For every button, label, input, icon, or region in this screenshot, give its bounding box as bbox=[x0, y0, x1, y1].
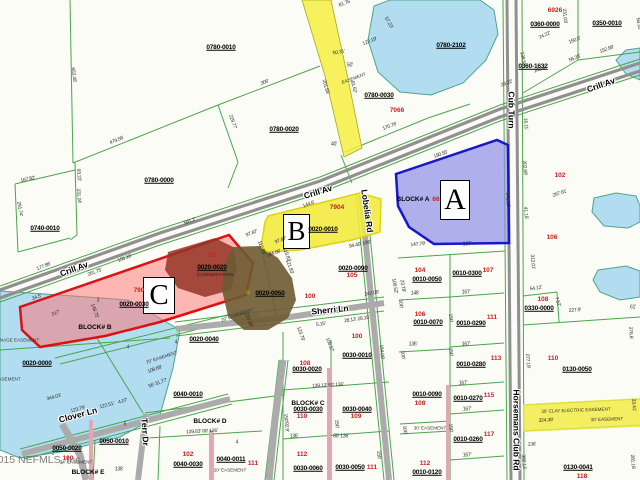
parcel-label: 0020-0000 bbox=[22, 361, 51, 368]
dimension-label: 154.09' bbox=[378, 344, 384, 359]
easement-label: 20' EASEMENT bbox=[214, 469, 247, 474]
dimension-label: 202.69' bbox=[521, 160, 527, 175]
dimension-label: 40' bbox=[331, 143, 337, 148]
dimension-label: 382.12' bbox=[520, 454, 526, 469]
dimension-label: 61' bbox=[630, 306, 636, 311]
dimension-label: 150' bbox=[375, 451, 381, 460]
dimension-label: 281.16' bbox=[629, 454, 635, 469]
number-label: 4 bbox=[236, 441, 239, 446]
parcel-label: 0010-0070 bbox=[413, 320, 442, 327]
lot_number-label: 66 bbox=[432, 197, 439, 204]
lot_number-label: 100 bbox=[305, 294, 316, 301]
parcel-label: 0780-0010 bbox=[206, 45, 235, 52]
parcel-label: 0030-0010 bbox=[342, 353, 371, 360]
parcel-label: 0020-0020 bbox=[197, 265, 226, 272]
block-label: BLOCK# A bbox=[397, 197, 430, 204]
dimension-label: 312.01' bbox=[529, 254, 535, 269]
lot_number-label: 106 bbox=[547, 235, 558, 242]
parcel-label: 0010-0290 bbox=[456, 321, 485, 328]
region-c-letter-box: C bbox=[143, 277, 175, 314]
lot_number-label: 102 bbox=[183, 452, 194, 459]
lot_number-label: 111 bbox=[248, 461, 258, 468]
parcel-label: 0010-0260 bbox=[453, 437, 482, 444]
dimension-label: 150' bbox=[447, 348, 453, 357]
dimension-label: 167' bbox=[463, 454, 472, 459]
lot_number-label: 117 bbox=[484, 432, 495, 439]
dimension-label: 167' bbox=[462, 343, 471, 348]
parcel-label: 0740-0010 bbox=[30, 226, 59, 233]
region-c-letter: C bbox=[149, 279, 168, 312]
parcel-label: 0010-0120 bbox=[412, 470, 441, 477]
dimension-label: 58.35' bbox=[634, 18, 640, 31]
region-a-letter: A bbox=[444, 183, 466, 217]
dimension-label: 100' bbox=[397, 300, 403, 309]
number-label: 3 bbox=[97, 299, 100, 304]
block-label: BLOCK# C bbox=[291, 401, 324, 408]
lot_number-label: 108 bbox=[538, 297, 549, 304]
dimension-label: 276.6' bbox=[627, 327, 633, 340]
region-a-letter-box: A bbox=[440, 180, 470, 220]
dimension-label: 16.11' bbox=[522, 118, 528, 130]
lot_number-label: 105 bbox=[347, 273, 358, 280]
parcel-label: 0780-2102 bbox=[436, 43, 465, 50]
lot_number-label: 110 bbox=[548, 356, 559, 363]
parcel-label: 0020-0040 bbox=[189, 337, 218, 344]
lot_number-label: 7066 bbox=[390, 108, 404, 115]
lot_number-label: 110 bbox=[297, 414, 308, 421]
dimension-label: 167' bbox=[459, 382, 468, 387]
lot_number-label: 112 bbox=[420, 461, 431, 468]
dimension-label: 231.24' bbox=[75, 188, 81, 203]
parcel-label: 0360-0000 bbox=[530, 22, 559, 29]
parcel-label: 0030-0020 bbox=[292, 367, 321, 374]
number-label: 5 bbox=[124, 423, 127, 428]
lot_number-label: 115 bbox=[484, 393, 495, 400]
dimension-label: 136' bbox=[290, 435, 299, 440]
lot_number-label: 112 bbox=[297, 452, 308, 459]
lot_number-label: 107 bbox=[483, 268, 494, 275]
lot_number-label: 50 bbox=[208, 253, 215, 260]
lot_number-label: 102 bbox=[555, 173, 566, 180]
dimension-label: 241.18' bbox=[504, 192, 510, 207]
parcel-label: 0040-0011 bbox=[217, 457, 246, 464]
mls-watermark: ©2015 NEFMLS, Inc bbox=[0, 454, 80, 466]
dimension-label: 93.22' bbox=[75, 169, 81, 182]
dimension-label: 231.03' bbox=[561, 8, 567, 23]
dimension-label: 138.5' bbox=[518, 52, 525, 65]
lot_number-label: 100 bbox=[352, 334, 363, 341]
dimension-label: 41.15' bbox=[522, 207, 528, 220]
parcel-label: 0010-0050 bbox=[412, 277, 441, 284]
dimension-label: 33.41' bbox=[630, 399, 636, 412]
easement-label: 30' EASEMENT bbox=[414, 427, 447, 432]
dimension-label: 100' bbox=[401, 426, 407, 435]
parcel-label: 0330-0000 bbox=[524, 306, 553, 313]
dimension-label: 136' bbox=[409, 343, 418, 348]
dimension-label: 167' bbox=[463, 408, 472, 413]
parcel-label: 0040-0010 bbox=[173, 392, 202, 399]
region-b-letter: B bbox=[287, 216, 305, 247]
region-b-letter-box: B bbox=[283, 214, 310, 249]
parcel-label: 0020-0010 bbox=[308, 227, 337, 234]
parcel-label: 0010-0280 bbox=[456, 362, 485, 369]
dimension-label: 150' bbox=[333, 420, 339, 429]
dimension-label: 167' bbox=[462, 291, 471, 296]
parcel-label: 0040-0030 bbox=[173, 462, 202, 469]
lot_number-label: 118 bbox=[577, 474, 588, 480]
dimension-label: 23.78' bbox=[398, 280, 405, 293]
lot_number-label: 111 bbox=[367, 465, 377, 472]
lot_number-label: 108 bbox=[415, 401, 426, 408]
dimension-label: 277.19' bbox=[524, 353, 530, 368]
lot_number-label: 113 bbox=[491, 356, 502, 363]
dimension-label: 80' 136' bbox=[333, 435, 349, 440]
dimension-label: 146' bbox=[411, 292, 420, 297]
note-label: (CONSERVATION bbox=[197, 273, 234, 278]
dimension-label: 92.9' bbox=[283, 422, 289, 432]
lot_number-label: 108 bbox=[300, 361, 311, 368]
parcel-label: 0130-0041 bbox=[563, 465, 592, 472]
parcel-label: 0780-0000 bbox=[144, 178, 173, 185]
dimension-label: 136' bbox=[115, 468, 124, 473]
parcel-label: 0780-0030 bbox=[364, 93, 393, 100]
lot_number-label: 7904 bbox=[330, 205, 344, 212]
road-label: Horsemans Club Rd bbox=[512, 389, 521, 470]
dimension-label: 227.9' bbox=[569, 308, 582, 314]
plat-map[interactable]: A B C 0780-00100780-00200780-00000740-00… bbox=[0, 0, 640, 480]
lot_number-label: 111 bbox=[487, 315, 497, 322]
parcel-label: 0020-0050 bbox=[255, 291, 284, 298]
easement-label: DRAINAGE EASEMENT bbox=[0, 339, 39, 344]
parcel-label: 0780-0020 bbox=[269, 127, 298, 134]
number-label: 4 bbox=[127, 346, 130, 351]
road-label: Cub Turn bbox=[507, 91, 516, 128]
parcel-label: 0010-0300 bbox=[452, 271, 481, 278]
lot_number-label: 109 bbox=[351, 414, 362, 421]
lot_number-label: 106 bbox=[415, 312, 426, 319]
parcel-label: 0030-0060 bbox=[293, 466, 322, 473]
block-label: BLOCK# B bbox=[78, 325, 111, 332]
parcel-label: 0130-0050 bbox=[562, 367, 591, 374]
parcel-label: 0010-0270 bbox=[453, 396, 482, 403]
parcel-label: 0020-0030 bbox=[119, 302, 148, 309]
easement-label: EASEMENT bbox=[0, 378, 21, 383]
parcel-label: 0050-0010 bbox=[99, 439, 128, 446]
dimension-label: 150' bbox=[447, 424, 453, 433]
number-label: 4 bbox=[175, 341, 178, 346]
marker-label: ⊕ bbox=[245, 290, 251, 297]
dimension-label: 653.48' bbox=[70, 67, 77, 82]
lot_number-label: 104 bbox=[415, 268, 426, 275]
dimension-label: 50' bbox=[347, 64, 353, 69]
block-label: BLOCK# E bbox=[72, 470, 105, 477]
parcel-label: 0350-0010 bbox=[592, 21, 621, 28]
dimension-label: 167' bbox=[463, 243, 472, 248]
block-label: BLOCK# D bbox=[193, 419, 226, 426]
dimension-label: 150' bbox=[447, 314, 453, 323]
dimension-label: 136' bbox=[528, 442, 537, 447]
clay-electric-easement-band bbox=[523, 398, 640, 432]
dimension-label: 324.38' bbox=[538, 418, 553, 424]
parcel-label: 0010-0090 bbox=[412, 392, 441, 399]
parcel-label: 0030-0050 bbox=[335, 465, 364, 472]
road-label: Terr Dr bbox=[140, 418, 150, 446]
parcel-label: 0050-0020 bbox=[52, 446, 81, 453]
dimension-label: 100' bbox=[399, 351, 405, 360]
lot_number-label: 790 bbox=[134, 288, 145, 295]
